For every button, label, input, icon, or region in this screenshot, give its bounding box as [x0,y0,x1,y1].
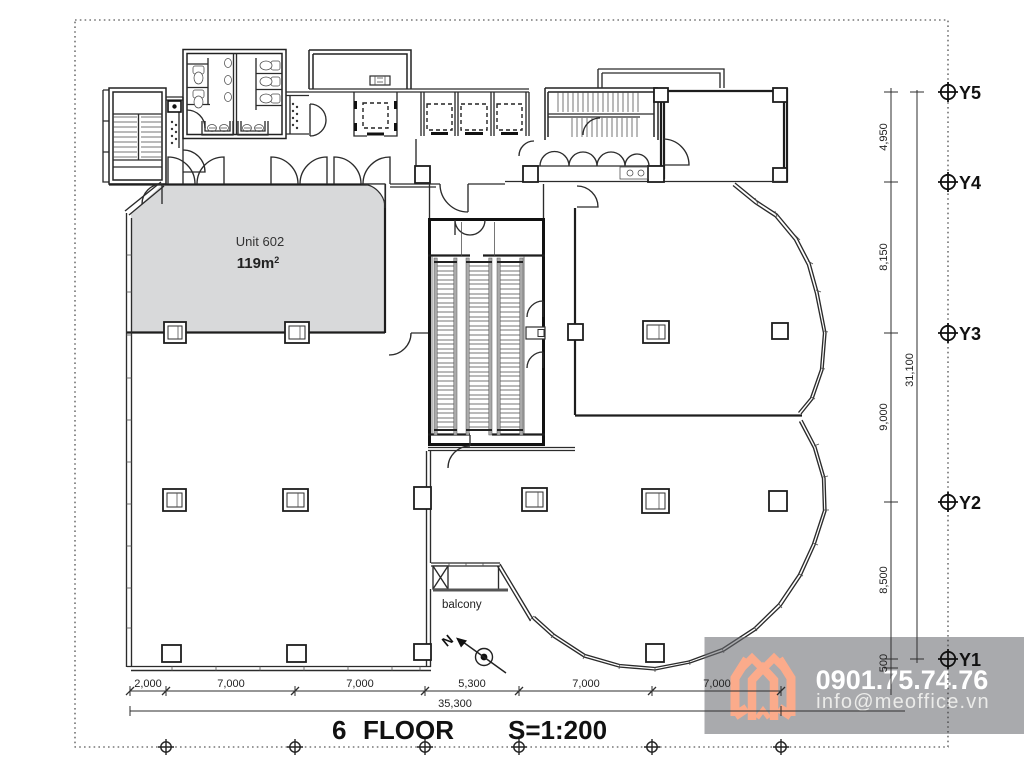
svg-text:Y5: Y5 [959,83,981,103]
svg-text:Y4: Y4 [959,173,981,193]
svg-text:8,500: 8,500 [878,566,890,594]
svg-text:S=1:200: S=1:200 [508,715,607,745]
svg-text:balcony: balcony [442,599,482,611]
svg-text:Unit 602: Unit 602 [236,234,284,249]
svg-text:Y1: Y1 [959,650,981,670]
svg-text:5,300: 5,300 [458,678,486,690]
svg-text:8,150: 8,150 [878,243,890,271]
svg-text:119m2: 119m2 [237,255,280,272]
svg-text:info@meoffice.vn: info@meoffice.vn [816,691,990,713]
svg-text:7,000: 7,000 [217,678,245,690]
svg-text:7,000: 7,000 [346,678,374,690]
svg-text:2,000: 2,000 [134,678,162,690]
svg-text:FLOOR: FLOOR [363,715,454,745]
svg-text:31,100: 31,100 [904,353,916,387]
svg-text:7,000: 7,000 [703,678,731,690]
svg-text:Y2: Y2 [959,493,981,513]
svg-text:Y3: Y3 [959,324,981,344]
svg-text:7,000: 7,000 [572,678,600,690]
svg-text:500: 500 [878,654,890,672]
svg-text:4,950: 4,950 [878,123,890,151]
svg-text:6: 6 [332,715,346,745]
svg-text:35,300: 35,300 [438,698,472,710]
svg-text:9,000: 9,000 [878,403,890,431]
